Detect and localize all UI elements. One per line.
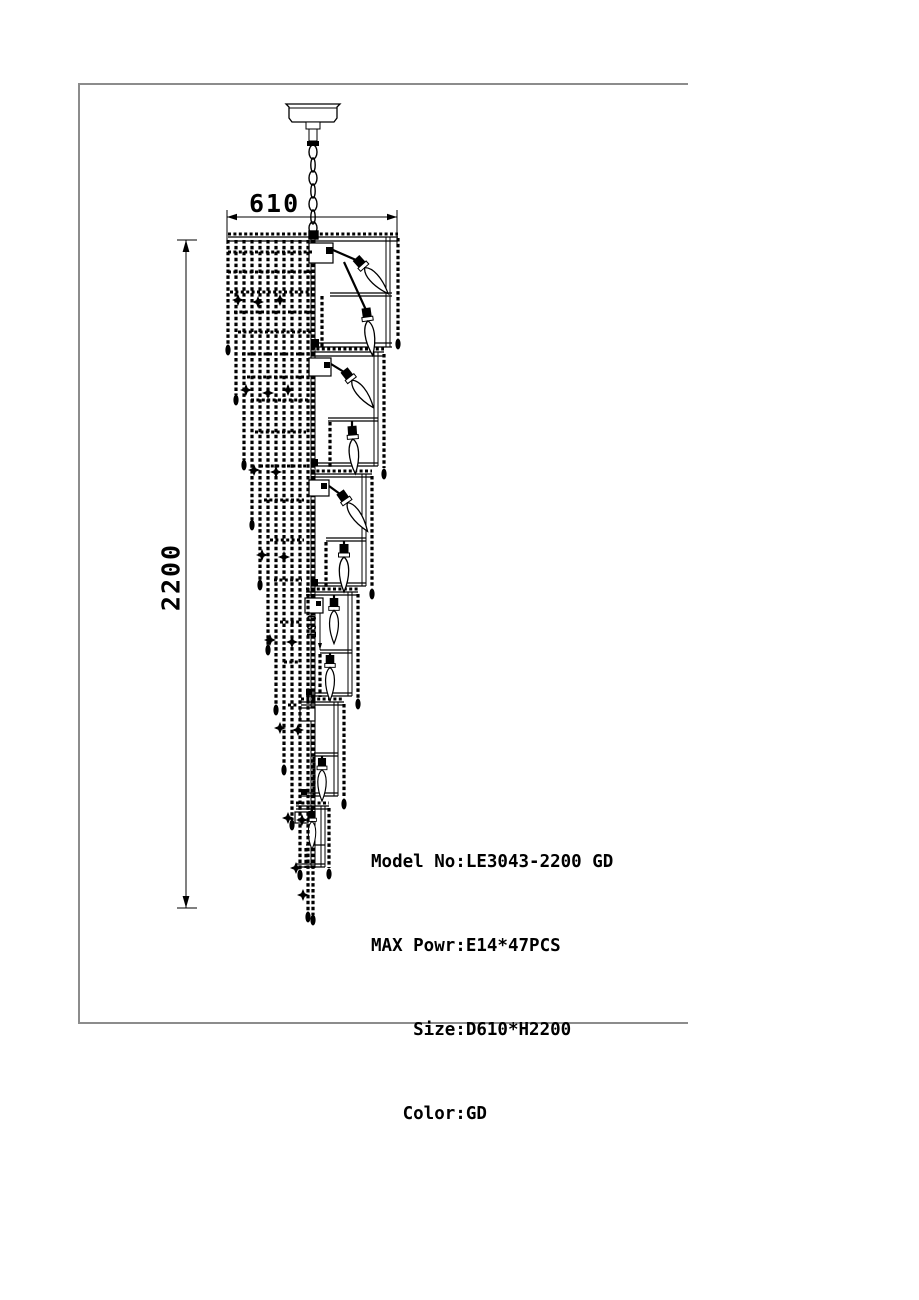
page: 610 2200 190 Model No:LE3043-2200 GD MAX… bbox=[0, 0, 919, 1300]
dimension-height-label: 2200 bbox=[157, 543, 186, 611]
dimension-width-label: 610 bbox=[249, 189, 300, 218]
spec-size: Size:D610*H2200 bbox=[371, 1016, 613, 1044]
spec-color: Color:GD bbox=[371, 1100, 613, 1128]
spec-model-no: Model No:LE3043-2200 GD bbox=[371, 848, 613, 876]
bulbs bbox=[308, 250, 393, 849]
canopy bbox=[286, 104, 340, 146]
chain bbox=[309, 145, 318, 239]
spec-max-power: MAX Powr:E14*47PCS bbox=[371, 932, 613, 960]
dimension-detail-label: 190 bbox=[305, 614, 319, 639]
spec-block: Model No:LE3043-2200 GD MAX Powr:E14*47P… bbox=[371, 792, 613, 1184]
